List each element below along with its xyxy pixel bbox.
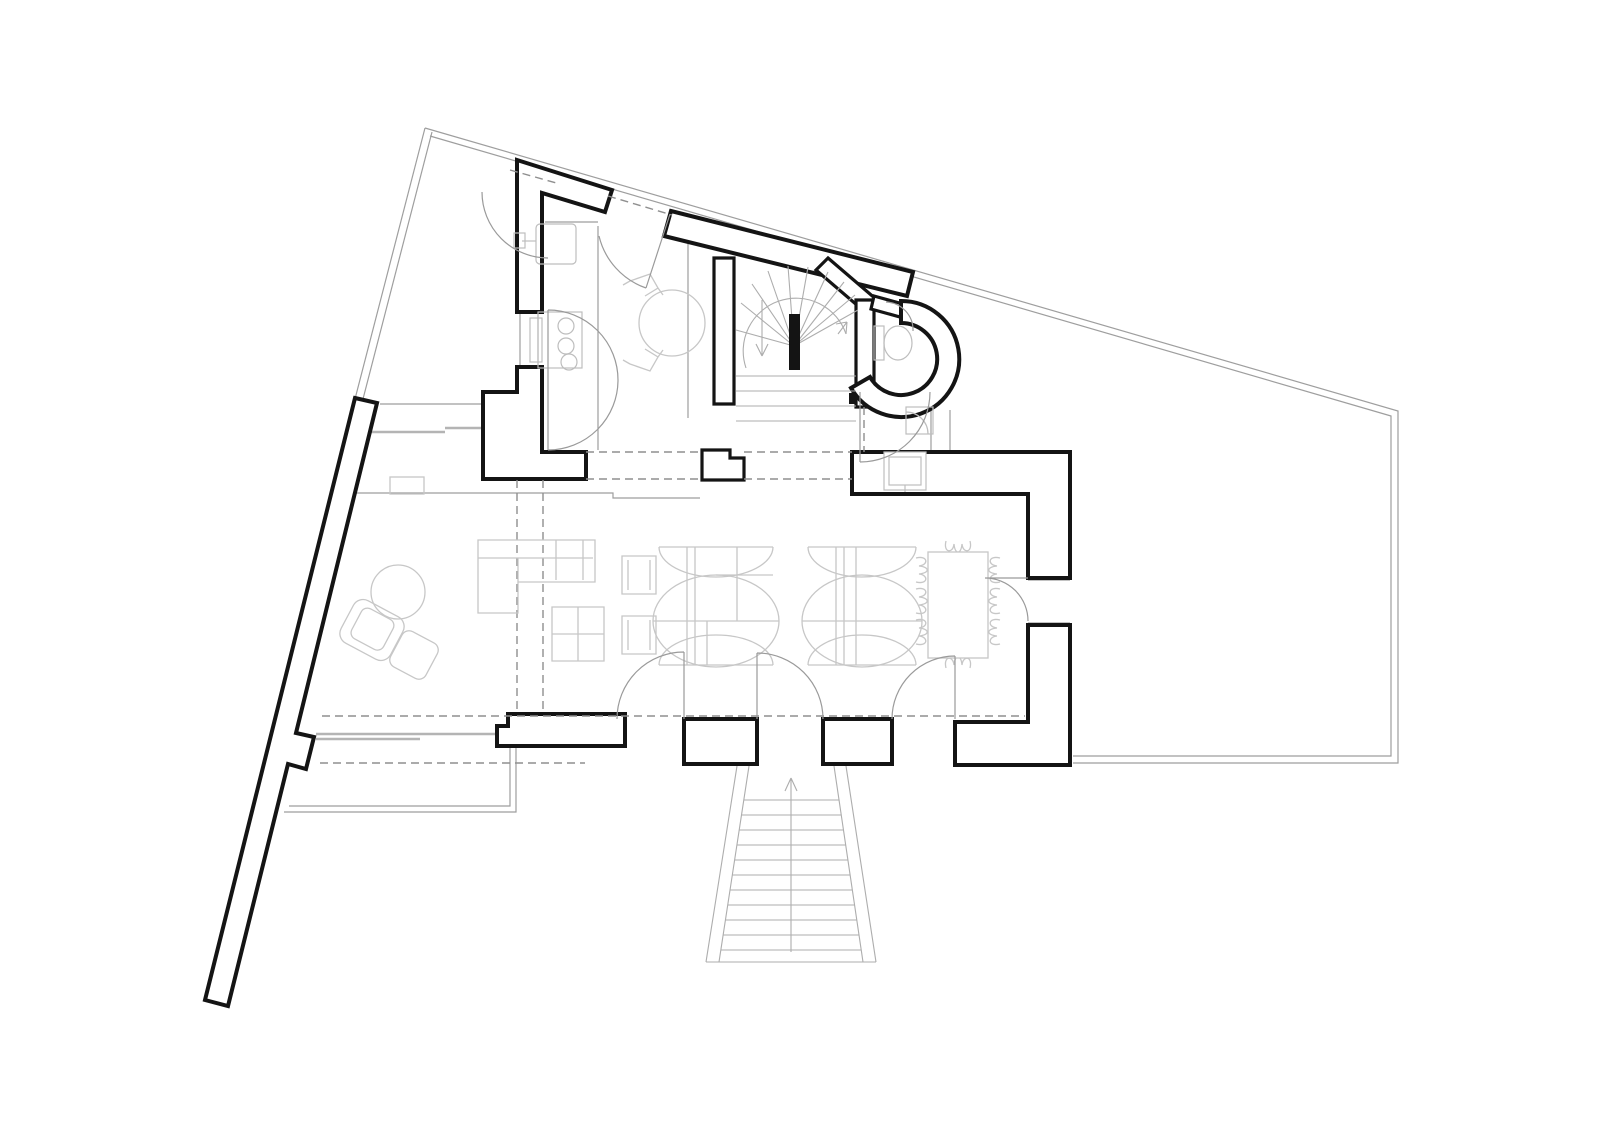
oven-handle	[530, 318, 542, 362]
lounge-units	[653, 547, 922, 667]
niche-opening	[884, 452, 926, 490]
up-arrow	[785, 778, 797, 952]
boundary-outer	[425, 128, 1398, 763]
entrance-door	[599, 214, 670, 288]
dining-table	[928, 552, 988, 658]
side-table	[371, 565, 425, 619]
kitchen-west-window	[520, 314, 538, 365]
l-sofa	[478, 540, 595, 613]
stair-newel	[789, 314, 800, 370]
basin-niche	[884, 452, 926, 492]
entry-opening-dashed	[608, 196, 672, 215]
wc-connector-wall	[871, 296, 903, 317]
floor-plan-canvas	[0, 0, 1600, 1142]
small-armchair-1	[622, 556, 656, 594]
floor-plan-page	[0, 0, 1600, 1142]
kitchen-double-door	[548, 310, 618, 450]
east-door	[985, 578, 1028, 621]
terrace-outer	[284, 746, 516, 812]
terrace	[284, 746, 516, 812]
kitchen-chair-1	[623, 274, 663, 296]
south-pier-2	[823, 719, 892, 764]
burner-2	[558, 338, 574, 354]
south-pier-1	[684, 719, 757, 764]
kitchen-counter-lines	[545, 222, 688, 450]
burner-1	[558, 318, 574, 334]
small-armchair-2	[622, 616, 656, 654]
armchair	[336, 596, 408, 665]
boundary-west-outer	[355, 128, 425, 399]
scallop-unit-1	[653, 547, 779, 667]
kitchen-sw-pier	[483, 367, 586, 479]
boundary-west-inner	[363, 132, 432, 399]
south-pier-west	[497, 714, 625, 746]
straight-treads	[736, 376, 856, 421]
north-wall-band	[664, 211, 913, 296]
radiator	[390, 477, 424, 494]
coffee-table	[552, 607, 604, 661]
boundary-inner	[430, 136, 1391, 756]
living-furniture	[336, 477, 656, 682]
west-glazing	[365, 428, 497, 432]
scallop-unit-2	[802, 547, 922, 667]
south-door-1	[617, 652, 684, 719]
toilet-bowl	[884, 326, 912, 360]
south-west-glazing	[316, 734, 497, 739]
walkway-dashed	[517, 480, 543, 714]
dining-furniture	[916, 541, 1000, 668]
exterior-stair	[706, 766, 876, 962]
south-door-2	[757, 653, 823, 719]
terrace-inner	[289, 748, 510, 806]
down-arrow	[756, 300, 768, 356]
kitchen-table	[639, 290, 705, 356]
ottoman	[387, 628, 441, 682]
kitchen-stair-partition	[714, 258, 734, 404]
boundary-wall-west	[205, 398, 377, 1006]
hall-pier	[702, 450, 744, 480]
